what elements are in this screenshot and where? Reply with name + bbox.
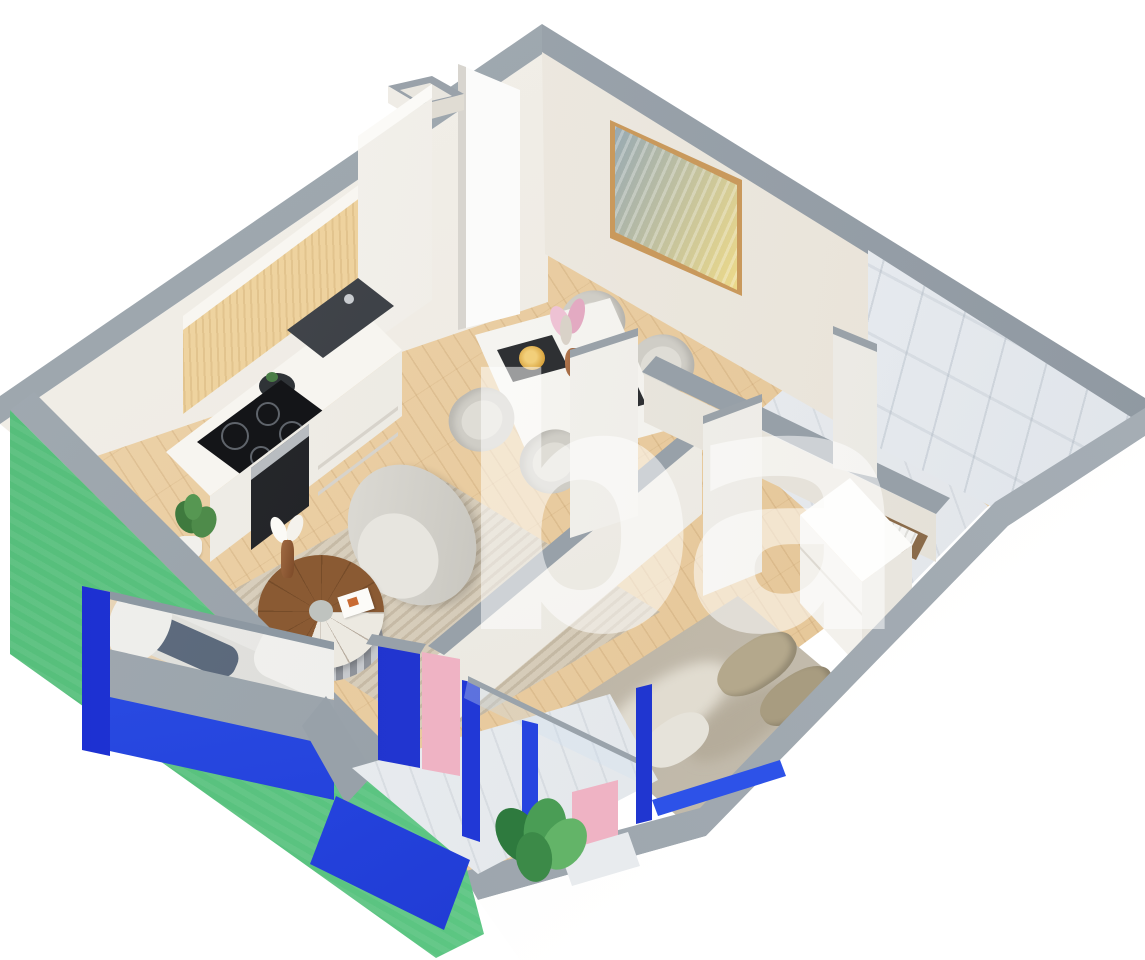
apartment-render: ba (0, 0, 1145, 960)
tray-herb (266, 372, 278, 382)
candle-holder (281, 540, 294, 578)
coffee-table-center-bowl (309, 600, 333, 622)
kitchen-faucet (344, 294, 354, 304)
kitchen-plant-leaf-3 (184, 494, 202, 520)
burner-2 (256, 402, 280, 426)
burner-1 (221, 422, 249, 450)
watermark-logo: ba (452, 338, 892, 683)
